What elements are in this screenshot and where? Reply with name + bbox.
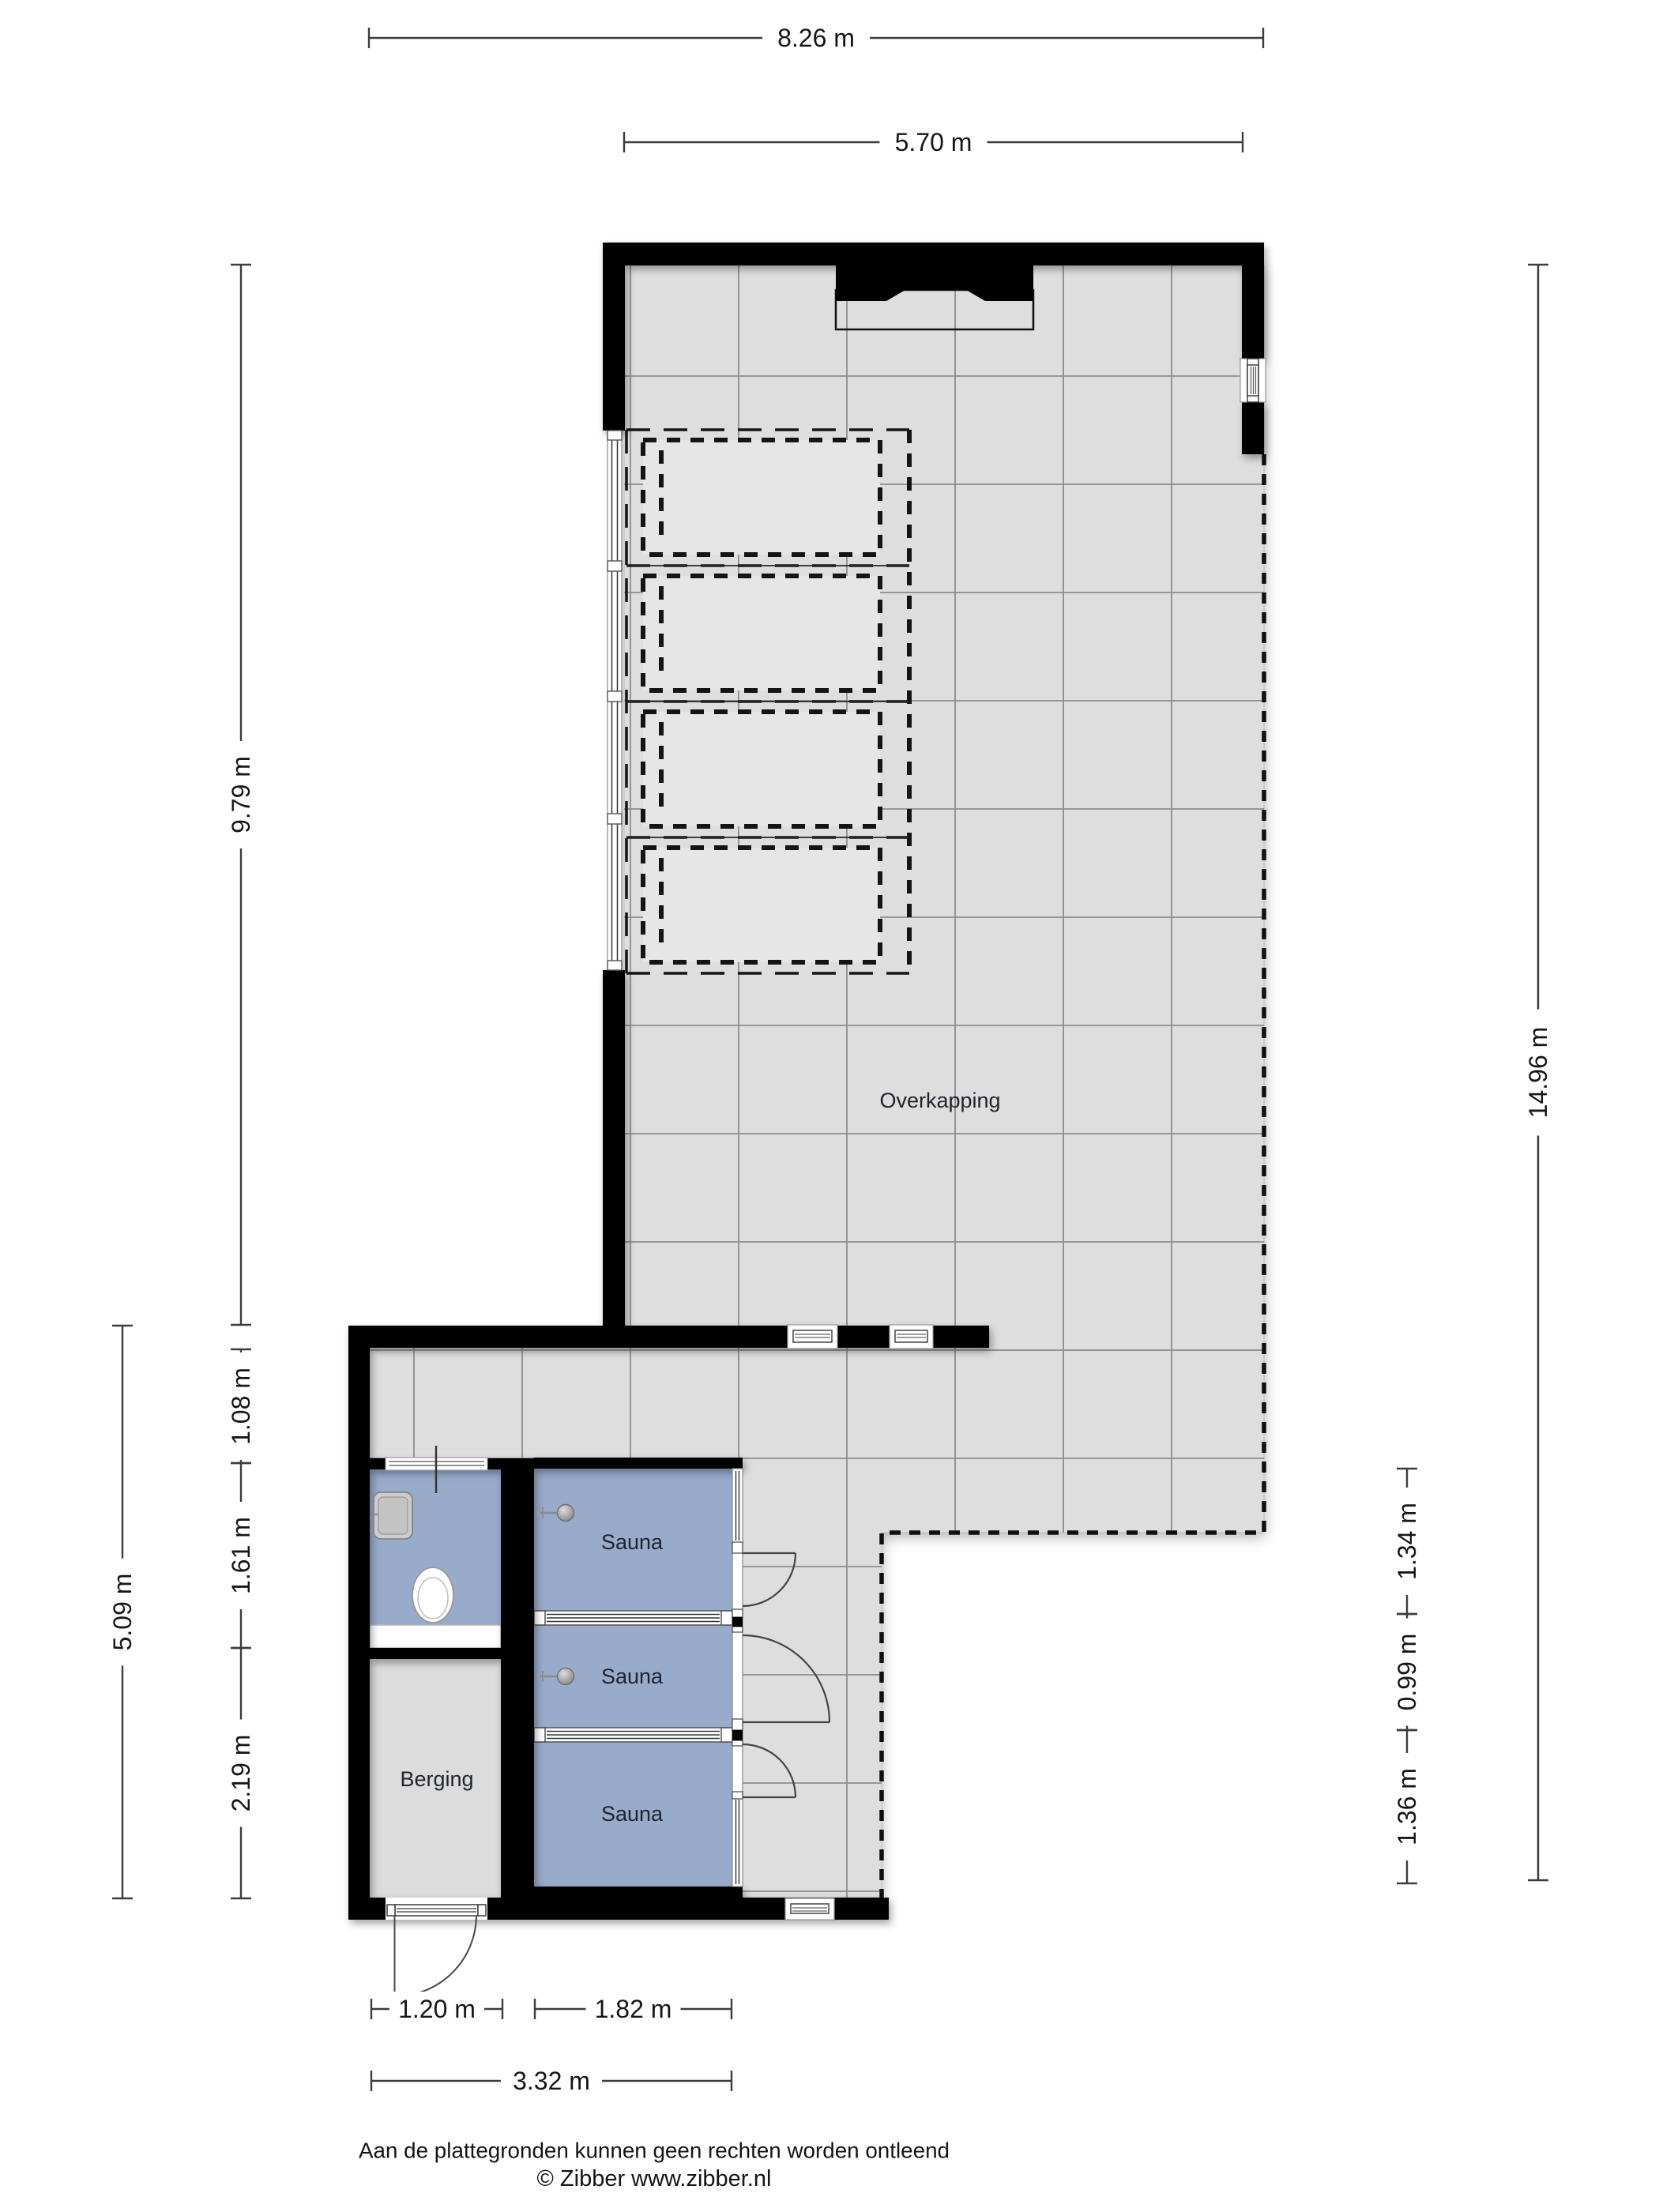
svg-text:1.61 m: 1.61 m bbox=[227, 1517, 255, 1594]
svg-text:2.19 m: 2.19 m bbox=[227, 1735, 255, 1812]
svg-text:1.08 m: 1.08 m bbox=[227, 1367, 255, 1445]
svg-text:© Zibber www.zibber.nl: © Zibber www.zibber.nl bbox=[537, 2166, 772, 2191]
svg-text:1.82 m: 1.82 m bbox=[595, 1995, 672, 2023]
svg-text:9.79 m: 9.79 m bbox=[227, 756, 255, 833]
svg-text:5.70 m: 5.70 m bbox=[895, 128, 972, 156]
svg-text:1.36 m: 1.36 m bbox=[1393, 1768, 1421, 1845]
svg-text:Aan de plattegronden kunnen ge: Aan de plattegronden kunnen geen rechten… bbox=[359, 2139, 950, 2163]
svg-text:5.09 m: 5.09 m bbox=[108, 1574, 137, 1651]
svg-text:Berging: Berging bbox=[400, 1767, 473, 1791]
svg-text:Sauna: Sauna bbox=[601, 1665, 664, 1688]
svg-text:Sauna: Sauna bbox=[601, 1802, 664, 1826]
svg-text:0.99 m: 0.99 m bbox=[1393, 1634, 1421, 1711]
svg-text:1.20 m: 1.20 m bbox=[398, 1995, 476, 2023]
svg-text:Overkapping: Overkapping bbox=[879, 1089, 1000, 1112]
svg-text:8.26 m: 8.26 m bbox=[777, 24, 855, 52]
svg-text:Sauna: Sauna bbox=[601, 1530, 664, 1554]
svg-text:1.34 m: 1.34 m bbox=[1393, 1503, 1421, 1580]
svg-text:14.96 m: 14.96 m bbox=[1524, 1027, 1552, 1119]
svg-text:3.32 m: 3.32 m bbox=[513, 2067, 590, 2095]
